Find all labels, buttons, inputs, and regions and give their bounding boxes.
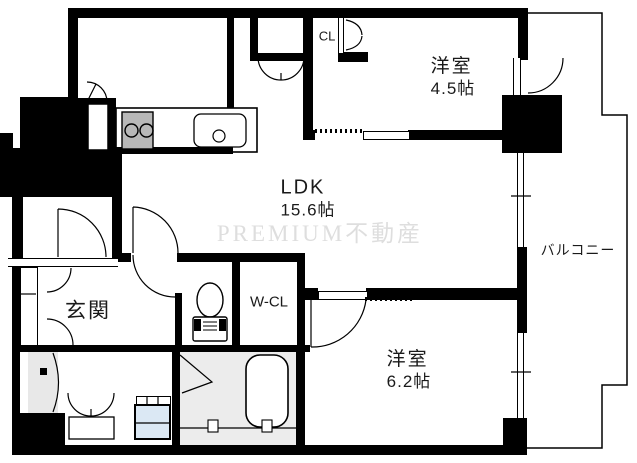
wall [12,267,20,352]
storage-door-arc [58,209,106,257]
wall [112,197,122,253]
room-size: 4.5帖 [431,80,476,97]
toilet-detail [194,319,201,331]
toilet-door-arc [133,255,175,297]
wall [300,288,318,300]
wall [78,98,116,172]
wall [177,253,305,262]
burner-icon [140,124,153,137]
balcony-outline [527,13,627,448]
closet-bifold-flaps [346,20,362,50]
drain-icon [213,130,225,142]
sliding-door-bedroom2 [318,291,368,300]
wall [303,18,313,140]
wall [502,95,562,153]
room-size: 6.2帖 [387,373,432,390]
toilet-icon [197,283,223,317]
room-name: 洋室 [387,349,429,370]
closet-bifold-panel [338,18,344,53]
wall [0,133,13,197]
wall [338,52,368,62]
room-name: LDK [280,177,325,199]
washbasin-icon [69,417,114,439]
wall [250,12,258,53]
wall [20,97,78,148]
room-label-bedroom2: 洋室 6.2帖 [387,350,432,390]
kitchen-sink-icon [194,114,246,147]
room-label-balcony: バルコニー [541,243,616,257]
washbasin-doors [68,393,114,416]
kitchen-counter [116,108,257,152]
washing-machine-pan [134,404,171,440]
washroom-door-mat [28,352,58,413]
counter-edge [116,147,233,154]
wall [172,352,180,445]
wall [68,8,528,18]
wall [68,8,78,100]
entrance-step [8,258,118,267]
shoe-cabinet [20,267,38,346]
floor-plan: PREMIUM不動産 洋室 4.5帖 LDK 15.6帖 洋室 6.2帖 玄関 … [0,0,637,463]
wall [518,8,528,60]
toilet-detail [203,322,217,330]
wall [303,130,315,140]
hall-doorway [131,254,177,261]
wall [503,418,527,448]
wall [12,445,527,455]
wall [12,345,310,352]
wall [12,197,23,258]
room-label-bedroom1: 洋室 4.5帖 [431,57,476,97]
burner-icon [125,124,138,137]
room-label-ldk: LDK 15.6帖 [280,178,335,219]
bedroom2-window [517,333,524,418]
wall [227,10,234,108]
wall [408,130,510,140]
hall-door-arc [133,207,178,253]
bedroom2-door-arc [311,300,366,347]
room-name: 洋室 [431,56,473,77]
ldk-window [517,153,524,247]
room-label-cl: CL [319,30,336,43]
wall [297,255,305,345]
toilet-detail [219,319,226,331]
toilet-tank [193,317,227,341]
bathroom-floor [180,352,296,445]
sliding-door-bedroom1 [363,131,410,140]
room-label-wcl: W-CL [250,295,288,310]
wall [12,413,65,448]
balcony-door-window [513,58,521,95]
room-label-entrance: 玄関 [65,301,111,322]
wall [296,352,305,445]
wall [250,53,310,61]
wall [232,258,240,345]
wall [366,288,520,300]
room-size: 15.6帖 [280,202,335,219]
balcony-door-arc [528,58,563,93]
gas-stove-icon [122,112,153,149]
wall [175,293,182,345]
